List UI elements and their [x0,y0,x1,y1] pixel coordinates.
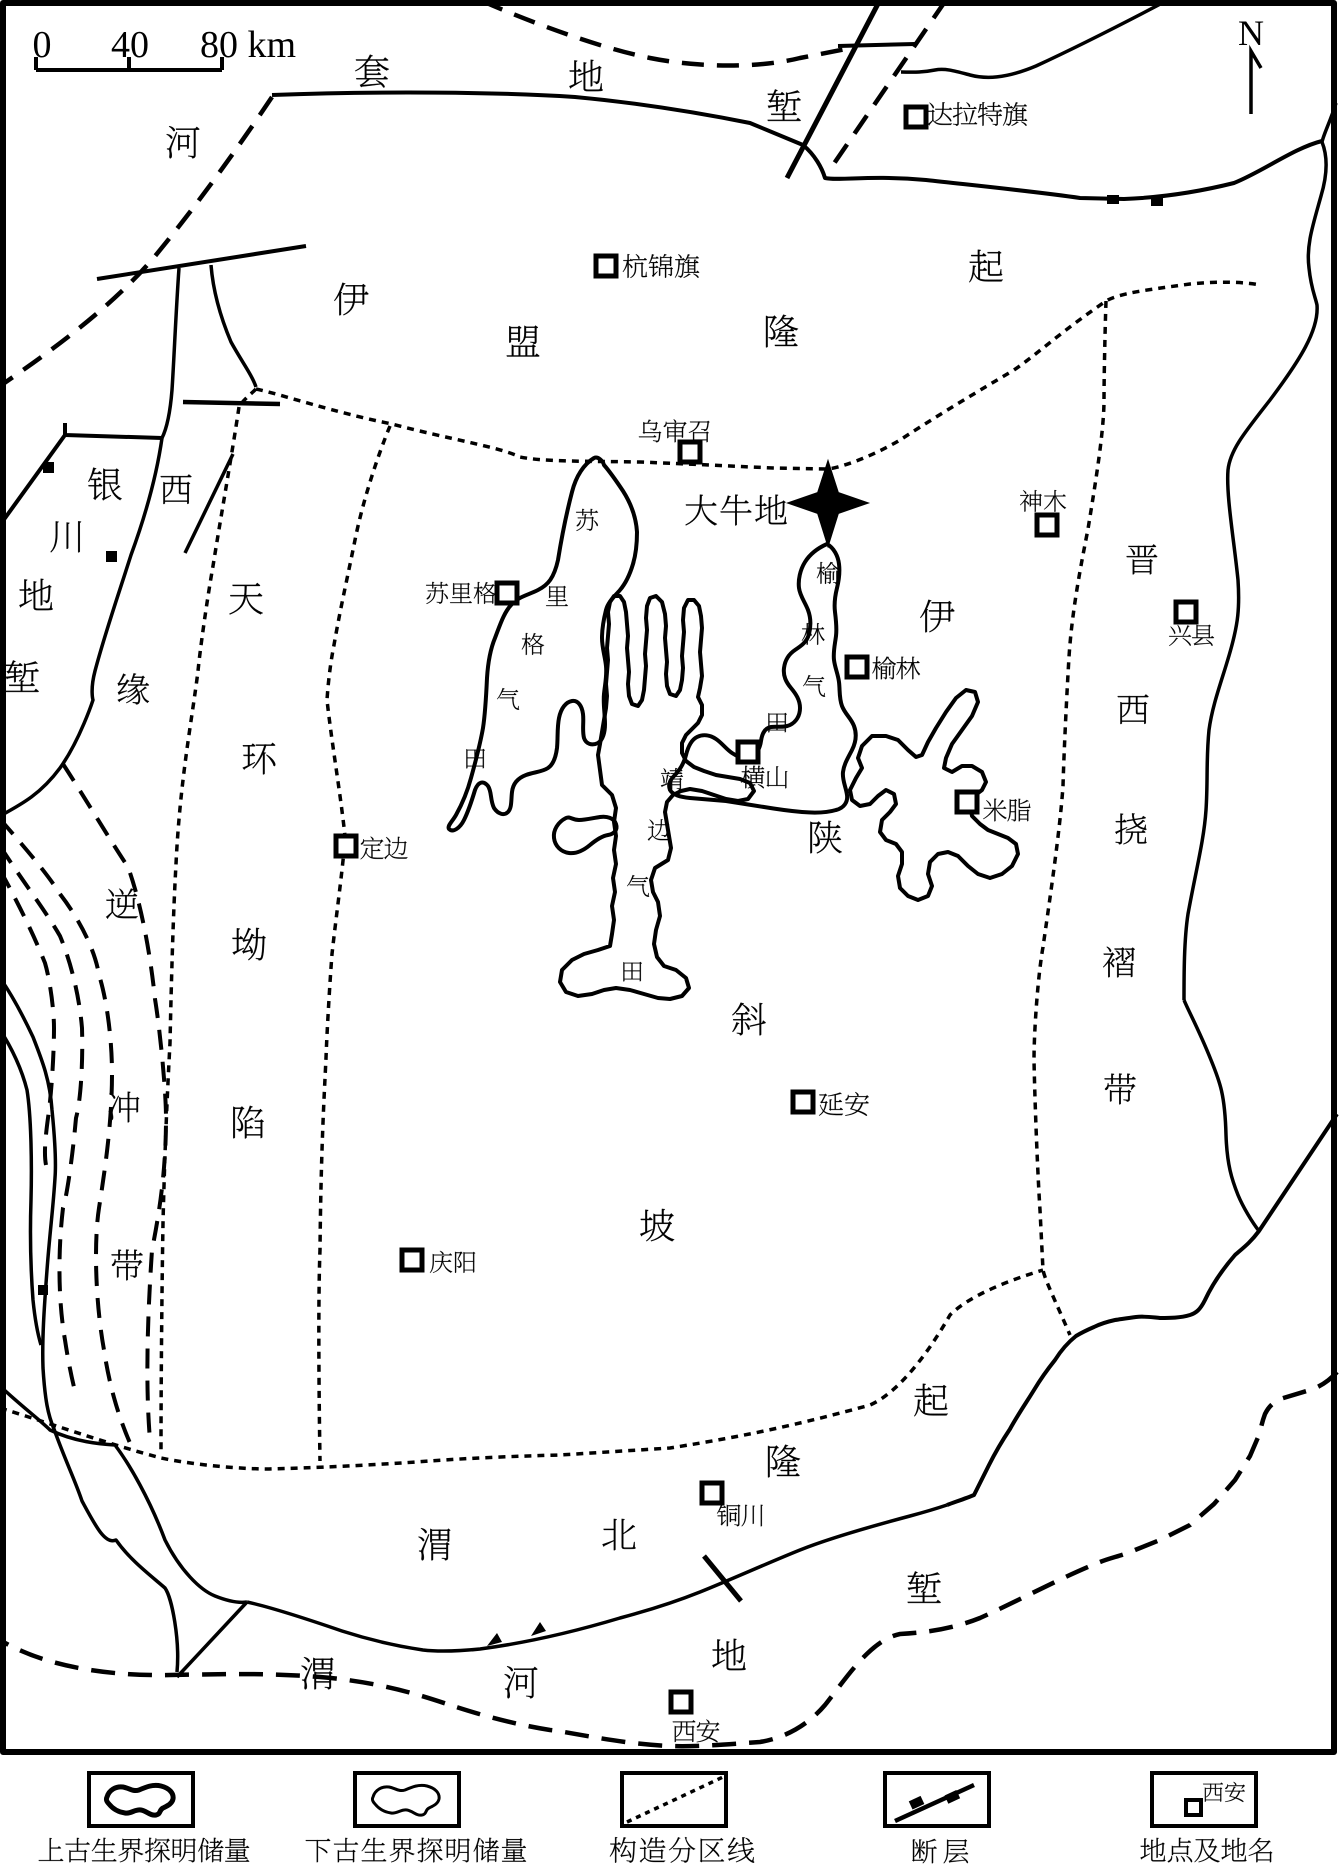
svg-text:80 km: 80 km [200,24,296,66]
svg-text:N: N [1238,13,1264,53]
svg-text:0: 0 [33,24,52,66]
svg-text:40: 40 [111,24,149,66]
